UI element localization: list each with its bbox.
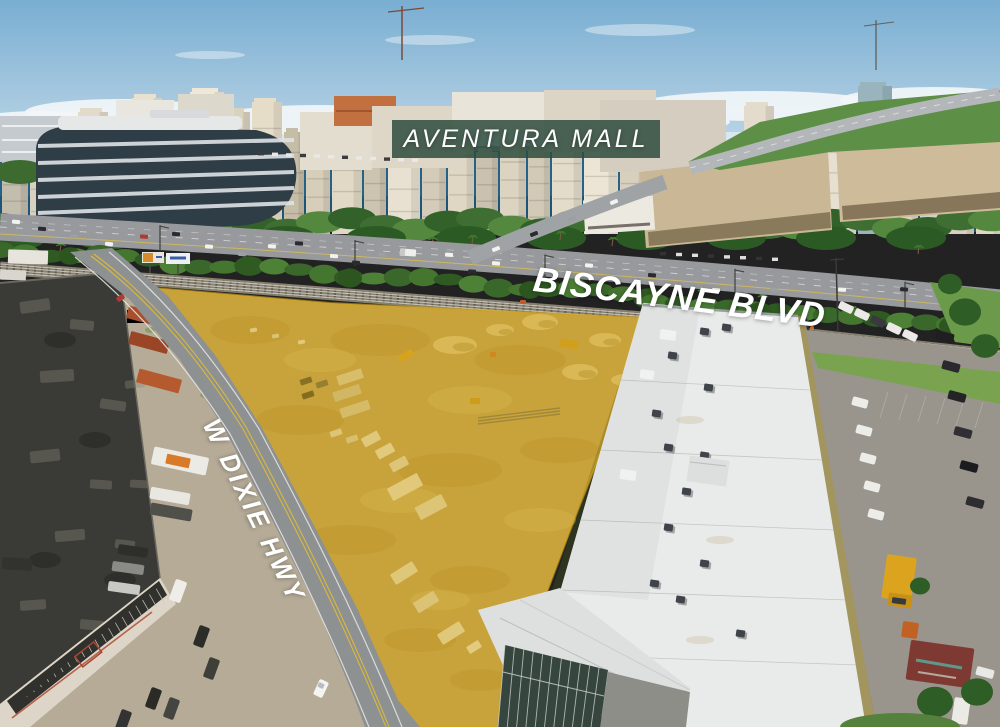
- aerial-photo-canvas: [0, 0, 1000, 727]
- aventura-mall-banner: AVENTURA MALL: [392, 120, 660, 158]
- aerial-photo: AVENTURA MALL BISCAYNE BLVD W DIXIE HWY: [0, 0, 1000, 727]
